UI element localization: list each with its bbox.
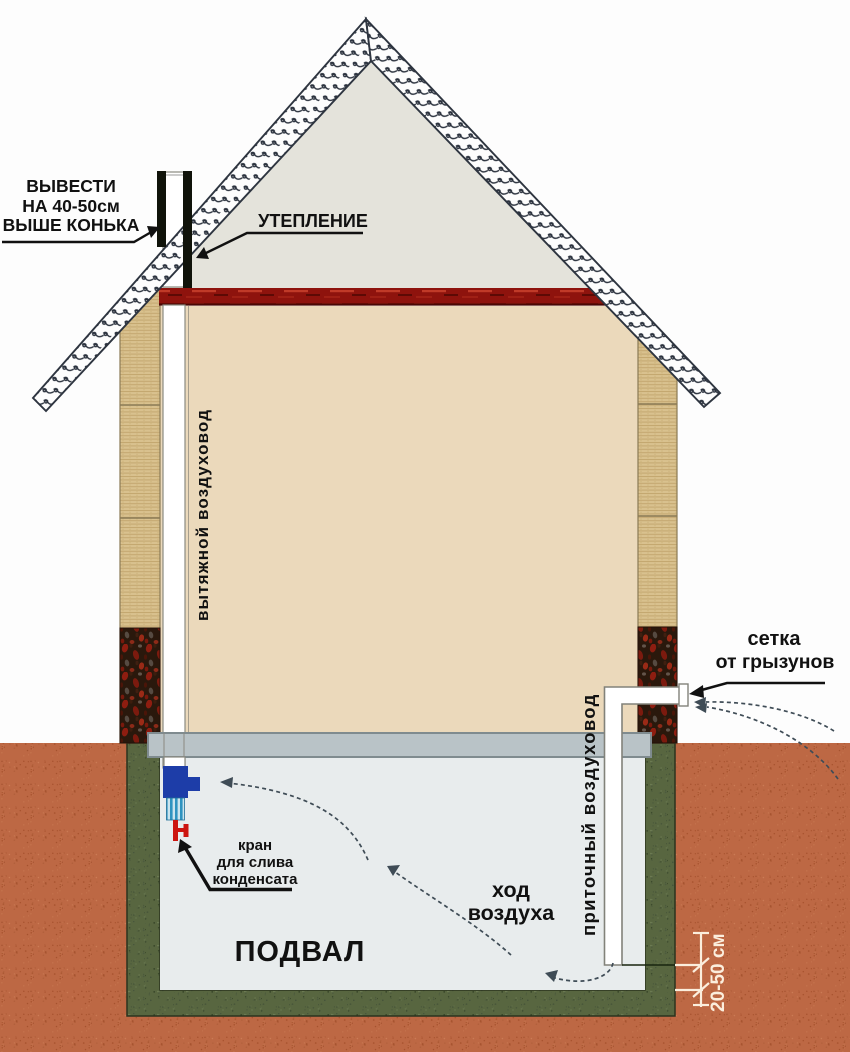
svg-text:ВЫШЕ КОНЬКА: ВЫШЕ КОНЬКА xyxy=(3,215,140,235)
svg-text:воздуха: воздуха xyxy=(468,901,556,925)
svg-text:ход: ход xyxy=(492,878,530,902)
svg-text:для слива: для слива xyxy=(217,854,294,871)
svg-text:конденсата: конденсата xyxy=(212,871,298,888)
svg-text:вытяжной воздуховод: вытяжной воздуховод xyxy=(193,409,212,621)
svg-text:от грызунов: от грызунов xyxy=(716,651,835,673)
svg-text:ВЫВЕСТИ: ВЫВЕСТИ xyxy=(26,176,116,196)
svg-text:ПОДВАЛ: ПОДВАЛ xyxy=(235,936,366,968)
svg-text:НА 40-50см: НА 40-50см xyxy=(22,196,120,216)
svg-text:20-50 см: 20-50 см xyxy=(708,934,729,1013)
svg-text:сетка: сетка xyxy=(748,628,802,650)
svg-text:приточный воздуховод: приточный воздуховод xyxy=(578,693,599,936)
svg-text:УТЕПЛЕНИЕ: УТЕПЛЕНИЕ xyxy=(258,211,368,231)
svg-text:кран: кран xyxy=(238,837,272,854)
